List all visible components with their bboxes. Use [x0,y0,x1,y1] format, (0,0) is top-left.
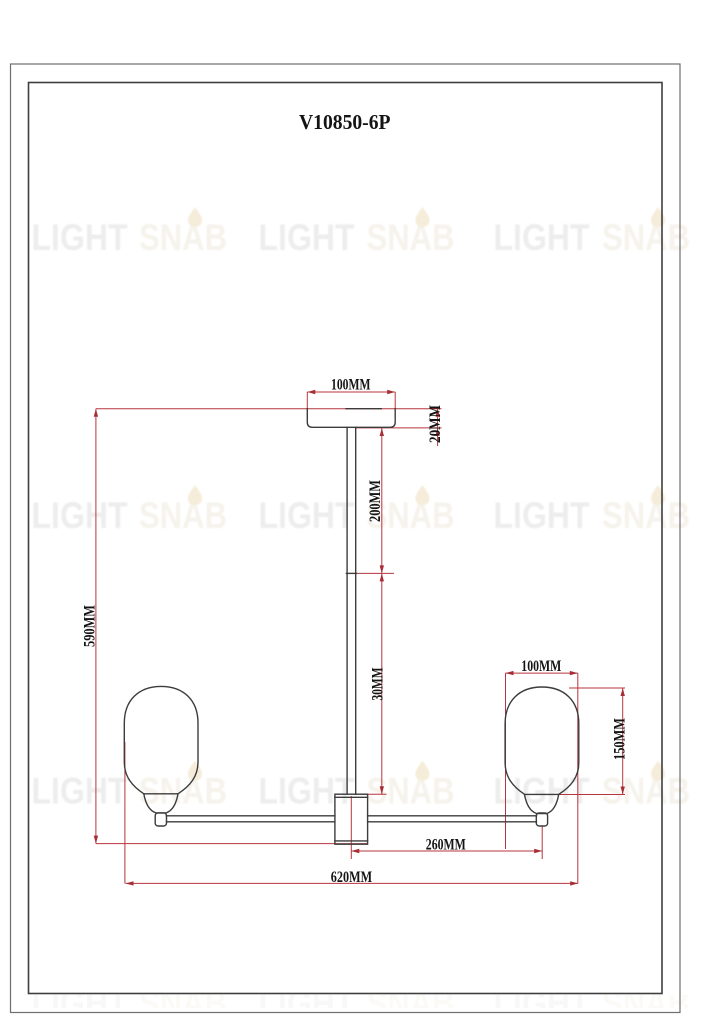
svg-text:20MM: 20MM [427,405,444,443]
svg-text:LIGHT: LIGHT [494,217,590,258]
svg-text:SNAB: SNAB [139,495,227,536]
svg-text:SNAB: SNAB [602,771,690,812]
svg-text:V10850-6P: V10850-6P [299,110,391,134]
svg-text:150MM: 150MM [612,718,629,760]
svg-text:SNAB: SNAB [139,217,227,258]
svg-text:200MM: 200MM [367,480,384,522]
svg-text:LIGHT: LIGHT [259,217,355,258]
svg-text:100MM: 100MM [331,377,371,394]
svg-text:SNAB: SNAB [602,217,690,258]
svg-text:LIGHT: LIGHT [259,771,355,812]
svg-text:SNAB: SNAB [602,495,690,536]
svg-text:LIGHT: LIGHT [32,495,128,536]
svg-text:260MM: 260MM [426,837,466,854]
svg-text:LIGHT: LIGHT [32,771,128,812]
svg-text:LIGHT: LIGHT [494,495,590,536]
svg-text:SNAB: SNAB [367,771,455,812]
svg-text:590MM: 590MM [82,605,99,647]
svg-text:30MM: 30MM [370,668,387,701]
svg-text:LIGHT: LIGHT [32,217,128,258]
svg-text:SNAB: SNAB [367,217,455,258]
svg-text:620MM: 620MM [331,869,372,886]
svg-text:LIGHT: LIGHT [259,495,355,536]
svg-text:100MM: 100MM [521,658,561,675]
